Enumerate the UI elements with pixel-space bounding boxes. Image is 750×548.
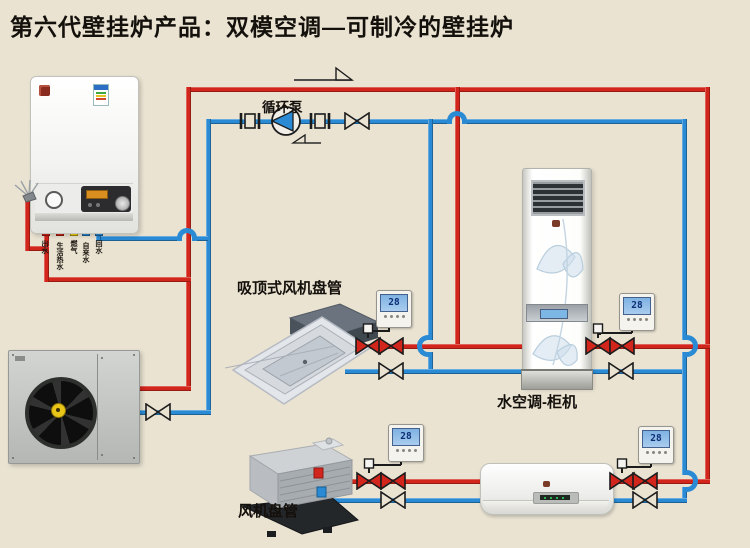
pipe-jump-pump-line [447, 111, 467, 124]
boiler-logo [39, 85, 50, 96]
pipe-hot-boiler-branch [44, 277, 191, 282]
pipe-jump-right-riser-1 [684, 335, 698, 357]
valve-wallac-hot [632, 472, 658, 490]
valve-wallac-cold [632, 491, 658, 509]
pipe-cold-boiler-return-b [196, 236, 208, 241]
system-diagram: 第六代壁挂炉产品：双模空调—可制冷的壁挂炉 循环泵 [0, 0, 750, 548]
cabinet-flower-art [523, 169, 591, 387]
port-label-return: 回水 [94, 240, 102, 288]
fan-coil-label: 风机盘管 [238, 500, 298, 521]
thermostat-buttons [620, 318, 654, 321]
boiler-display [86, 190, 108, 199]
port-label-gas: 燃气 [69, 240, 77, 288]
pipe-jump-right-riser-2 [684, 470, 698, 492]
pump-label: 循环泵 [262, 96, 303, 116]
pipe-hot-right-riser [705, 87, 710, 484]
heat-pump-brand [15, 356, 25, 361]
cassette-label: 吸顶式风机盘管 [237, 277, 342, 298]
valve-cabinet-hot [609, 337, 635, 355]
thermostat-fancoil: 28 [388, 424, 424, 462]
pipe-jump-cassette-riser [417, 335, 431, 357]
thermostat-fancoil-display: 28 [392, 428, 420, 446]
heat-pump-panel-seam [97, 354, 98, 460]
thermostat-cabinet-display: 28 [623, 297, 651, 315]
wall-ac-logo [543, 481, 550, 487]
heat-pump-fan-hub [51, 403, 66, 418]
cabinet-display [540, 309, 568, 319]
thermostat-cassette-display: 28 [380, 294, 408, 312]
valve-cassette-hot [378, 337, 404, 355]
wall-ac-display [533, 492, 579, 504]
thermostat-buttons [377, 315, 411, 318]
valve-cabinet-cold [608, 362, 634, 380]
valve-fancoil-cold [380, 491, 406, 509]
thermostat-buttons [639, 451, 673, 454]
valve-cassette-cold [378, 362, 404, 380]
shower-spray-icon [12, 180, 44, 206]
boiler-knob [115, 196, 130, 211]
pressure-gauge [45, 191, 63, 209]
cabinet-control-band [526, 304, 588, 322]
flow-direction-arrow [292, 64, 356, 84]
thermostat-wallac-display: 28 [642, 430, 670, 448]
pipe-cold-left-riser [206, 119, 211, 415]
heat-pump-outdoor-unit [8, 350, 140, 464]
pipe-cold-cassette-riser-a [428, 119, 433, 340]
pipe-hot-top-main [186, 87, 710, 92]
pipe-hot-heatpump [132, 386, 191, 391]
page-title: 第六代壁挂炉产品：双模空调—可制冷的壁挂炉 [10, 8, 514, 42]
pipe-cold-heatpump [132, 410, 211, 415]
pipe-cold-boiler-return-a [96, 236, 179, 241]
pipe-cold-right-riser-b [682, 352, 687, 475]
pipe-hot-cassette-riser [455, 87, 460, 349]
motor-valve-fancoil-hot [356, 458, 382, 490]
motor-valve-cabinet-hot [585, 323, 611, 355]
valve-fancoil-hot [380, 472, 406, 490]
pipe-cold-right-riser-a [682, 119, 687, 340]
flange-union-left [237, 112, 263, 130]
pipe-cold-pump-line-b [466, 119, 684, 124]
thermostat-buttons [389, 449, 423, 452]
floor-cabinet-ac-unit [522, 168, 592, 388]
thermostat-wallac: 28 [638, 426, 674, 464]
thermostat-cabinet: 28 [619, 293, 655, 331]
wall-ac-indoor-unit [480, 463, 614, 515]
boiler-bottom-edge [35, 213, 133, 221]
port-label-dhw: 生活热水 [55, 242, 63, 302]
energy-label [93, 84, 109, 106]
boiler-display-panel [81, 186, 131, 212]
cabinet-base [521, 369, 593, 390]
thermostat-cassette: 28 [376, 290, 412, 328]
valve-heatpump-line [145, 403, 171, 421]
ceiling-cassette-unit [225, 296, 395, 416]
port-label-tap-water: 自来水 [81, 242, 89, 297]
wall-hung-boiler [30, 76, 139, 234]
pipe-jump-boiler-return [177, 228, 197, 241]
flange-union-right [307, 112, 333, 130]
wall-ac-screen [540, 495, 570, 500]
cabinet-label: 水空调-柜机 [497, 391, 577, 412]
port-label-heating-supply: 出水 [40, 240, 48, 288]
valve-pump-line [344, 112, 370, 130]
boiler-control-panel [35, 183, 133, 214]
ducted-fan-coil-unit [225, 435, 400, 545]
